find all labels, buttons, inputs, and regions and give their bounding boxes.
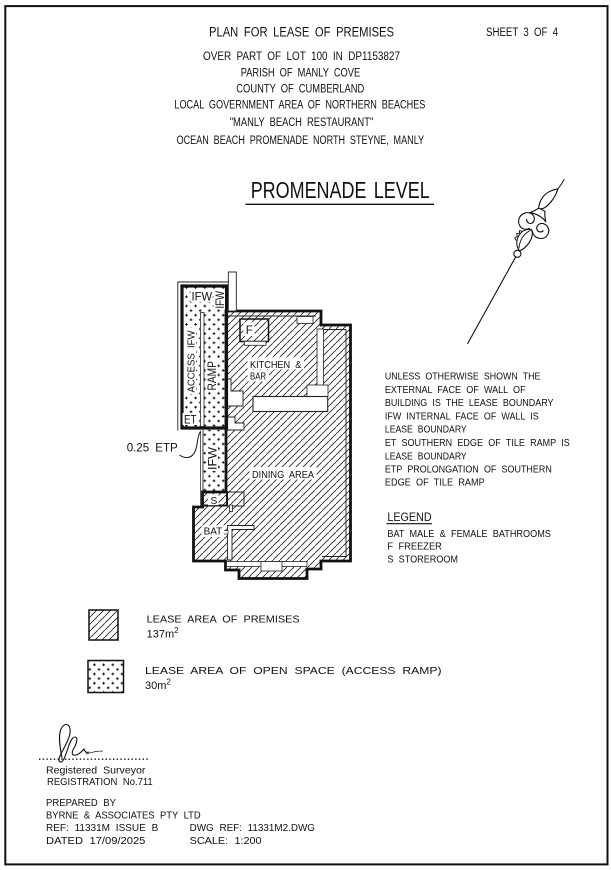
svg-text:BYRNE & ASSOCIATES PTY LTD: BYRNE & ASSOCIATES PTY LTD xyxy=(46,810,201,821)
svg-text:PARISH OF MANLY COVE: PARISH OF MANLY COVE xyxy=(241,68,361,80)
svg-text:LEASE AREA OF PREMISES: LEASE AREA OF PREMISES xyxy=(147,613,300,625)
svg-text:ET: ET xyxy=(184,415,197,427)
svg-text:F: F xyxy=(246,323,253,337)
svg-text:REGISTRATION No.711: REGISTRATION No.711 xyxy=(47,777,153,788)
svg-text:BAT MALE & FEMALE BATHROOMS: BAT MALE & FEMALE BATHROOMS xyxy=(387,529,551,540)
svg-text:IFW: IFW xyxy=(215,291,227,309)
svg-text:S STOREROOM: S STOREROOM xyxy=(387,554,458,565)
svg-text:SHEET 3 OF 4: SHEET 3 OF 4 xyxy=(486,27,559,39)
svg-text:Registered Surveyor: Registered Surveyor xyxy=(46,764,146,776)
svg-text:RAMP: RAMP xyxy=(207,361,219,391)
svg-text:S: S xyxy=(211,495,218,507)
svg-text:REF: 11331M ISSUE B: REF: 11331M ISSUE B xyxy=(46,823,159,834)
svg-text:IFW INTERNAL FACE OF WALL IS: IFW INTERNAL FACE OF WALL IS xyxy=(385,411,539,422)
svg-text:ET SOUTHERN EDGE OF TILE RAMP: ET SOUTHERN EDGE OF TILE RAMP IS xyxy=(385,438,570,449)
svg-text:OVER PART OF LOT 100 IN DP1153: OVER PART OF LOT 100 IN DP1153827 xyxy=(203,51,400,63)
svg-text:SCALE: 1:200: SCALE: 1:200 xyxy=(190,836,262,847)
svg-text:LEASE BOUNDARY: LEASE BOUNDARY xyxy=(385,425,467,436)
svg-text:OCEAN BEACH PROMENADE NORTH ST: OCEAN BEACH PROMENADE NORTH STEYNE, MANL… xyxy=(177,135,425,147)
svg-text:BAR: BAR xyxy=(250,370,266,382)
svg-text:DWG REF: 11331M2.DWG: DWG REF: 11331M2.DWG xyxy=(190,823,316,834)
svg-text:BUILDING IS THE LEASE BOUNDARY: BUILDING IS THE LEASE BOUNDARY xyxy=(385,398,554,409)
svg-text:EXTERNAL FACE OF WALL OF: EXTERNAL FACE OF WALL OF xyxy=(385,385,526,396)
svg-text:IFW: IFW xyxy=(192,292,213,304)
svg-text:ETP PROLONGATION OF SOUTHERN: ETP PROLONGATION OF SOUTHERN xyxy=(385,465,552,476)
svg-text:0.25 ETP: 0.25 ETP xyxy=(127,441,178,455)
svg-text:LOCAL GOVERNMENT AREA OF NORTH: LOCAL GOVERNMENT AREA OF NORTHERN BEACHE… xyxy=(174,100,425,112)
svg-text:PREPARED BY: PREPARED BY xyxy=(46,798,116,809)
svg-text:F FREEZER: F FREEZER xyxy=(387,541,442,552)
svg-text:PROMENADE LEVEL: PROMENADE LEVEL xyxy=(251,177,430,203)
svg-text:DINING AREA: DINING AREA xyxy=(252,469,314,481)
svg-text:COUNTY OF CUMBERLAND: COUNTY OF CUMBERLAND xyxy=(236,84,364,96)
svg-text:LEGEND: LEGEND xyxy=(387,510,431,524)
svg-text:LEASE AREA OF OPEN SPACE (ACCE: LEASE AREA OF OPEN SPACE (ACCESS RAMP) xyxy=(145,665,442,677)
svg-text:EDGE OF TILE RAMP: EDGE OF TILE RAMP xyxy=(385,477,485,488)
svg-text:DATED 17/09/2025: DATED 17/09/2025 xyxy=(46,836,146,847)
svg-text:LEASE BOUNDARY: LEASE BOUNDARY xyxy=(385,451,467,462)
svg-text:UNLESS OTHERWISE SHOWN THE: UNLESS OTHERWISE SHOWN THE xyxy=(385,372,541,383)
svg-text:ACCESS IFW: ACCESS IFW xyxy=(186,330,198,392)
svg-text:BAT: BAT xyxy=(204,526,223,538)
svg-text:KITCHEN &: KITCHEN & xyxy=(250,359,301,371)
svg-text:"MANLY BEACH RESTAURANT": "MANLY BEACH RESTAURANT" xyxy=(230,117,374,129)
svg-text:IFW: IFW xyxy=(208,447,220,470)
svg-text:PLAN FOR LEASE OF PREMISES: PLAN FOR LEASE OF PREMISES xyxy=(209,25,394,40)
